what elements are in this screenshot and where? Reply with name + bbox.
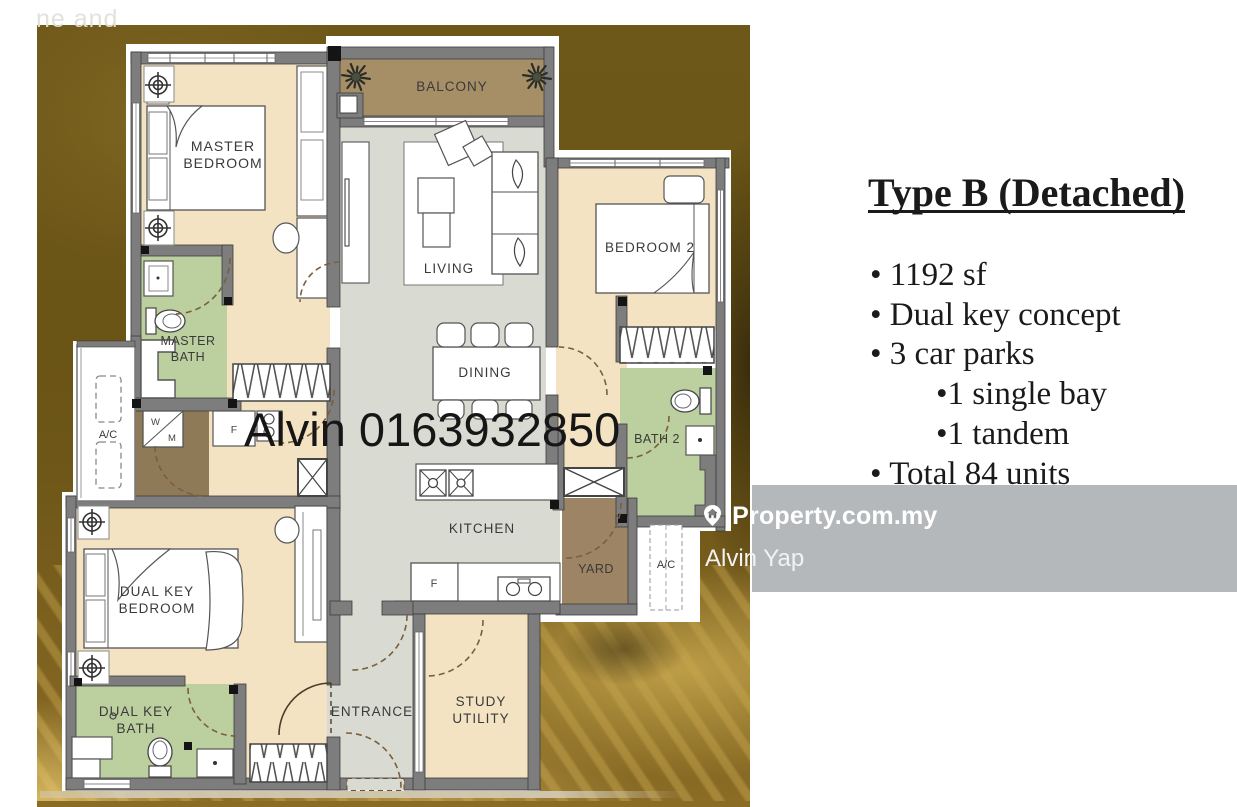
svg-text:BEDROOM: BEDROOM (119, 601, 196, 616)
svg-text:MASTER: MASTER (160, 334, 215, 348)
svg-text:KITCHEN: KITCHEN (449, 521, 515, 536)
svg-text:LIVING: LIVING (424, 261, 474, 276)
svg-text:STUDY: STUDY (456, 694, 507, 709)
svg-text:BATH: BATH (171, 350, 205, 364)
svg-text:A/C: A/C (99, 429, 117, 441)
svg-text:W: W (151, 417, 160, 428)
svg-text:BATH: BATH (116, 721, 155, 736)
svg-text:F: F (231, 424, 237, 436)
svg-text:BEDROOM 2: BEDROOM 2 (605, 240, 695, 255)
svg-text:M: M (168, 433, 176, 444)
svg-text:BALCONY: BALCONY (416, 79, 488, 94)
svg-text:F: F (431, 578, 438, 590)
svg-text:MASTER: MASTER (191, 138, 255, 154)
svg-text:BEDROOM: BEDROOM (183, 155, 262, 171)
svg-text:UTILITY: UTILITY (452, 711, 509, 726)
svg-text:A/C: A/C (657, 559, 675, 571)
svg-text:ENTRANCE: ENTRANCE (331, 704, 413, 719)
svg-text:DINING: DINING (458, 365, 511, 380)
svg-text:YARD: YARD (578, 562, 614, 576)
svg-text:DUAL KEY: DUAL KEY (120, 584, 194, 599)
